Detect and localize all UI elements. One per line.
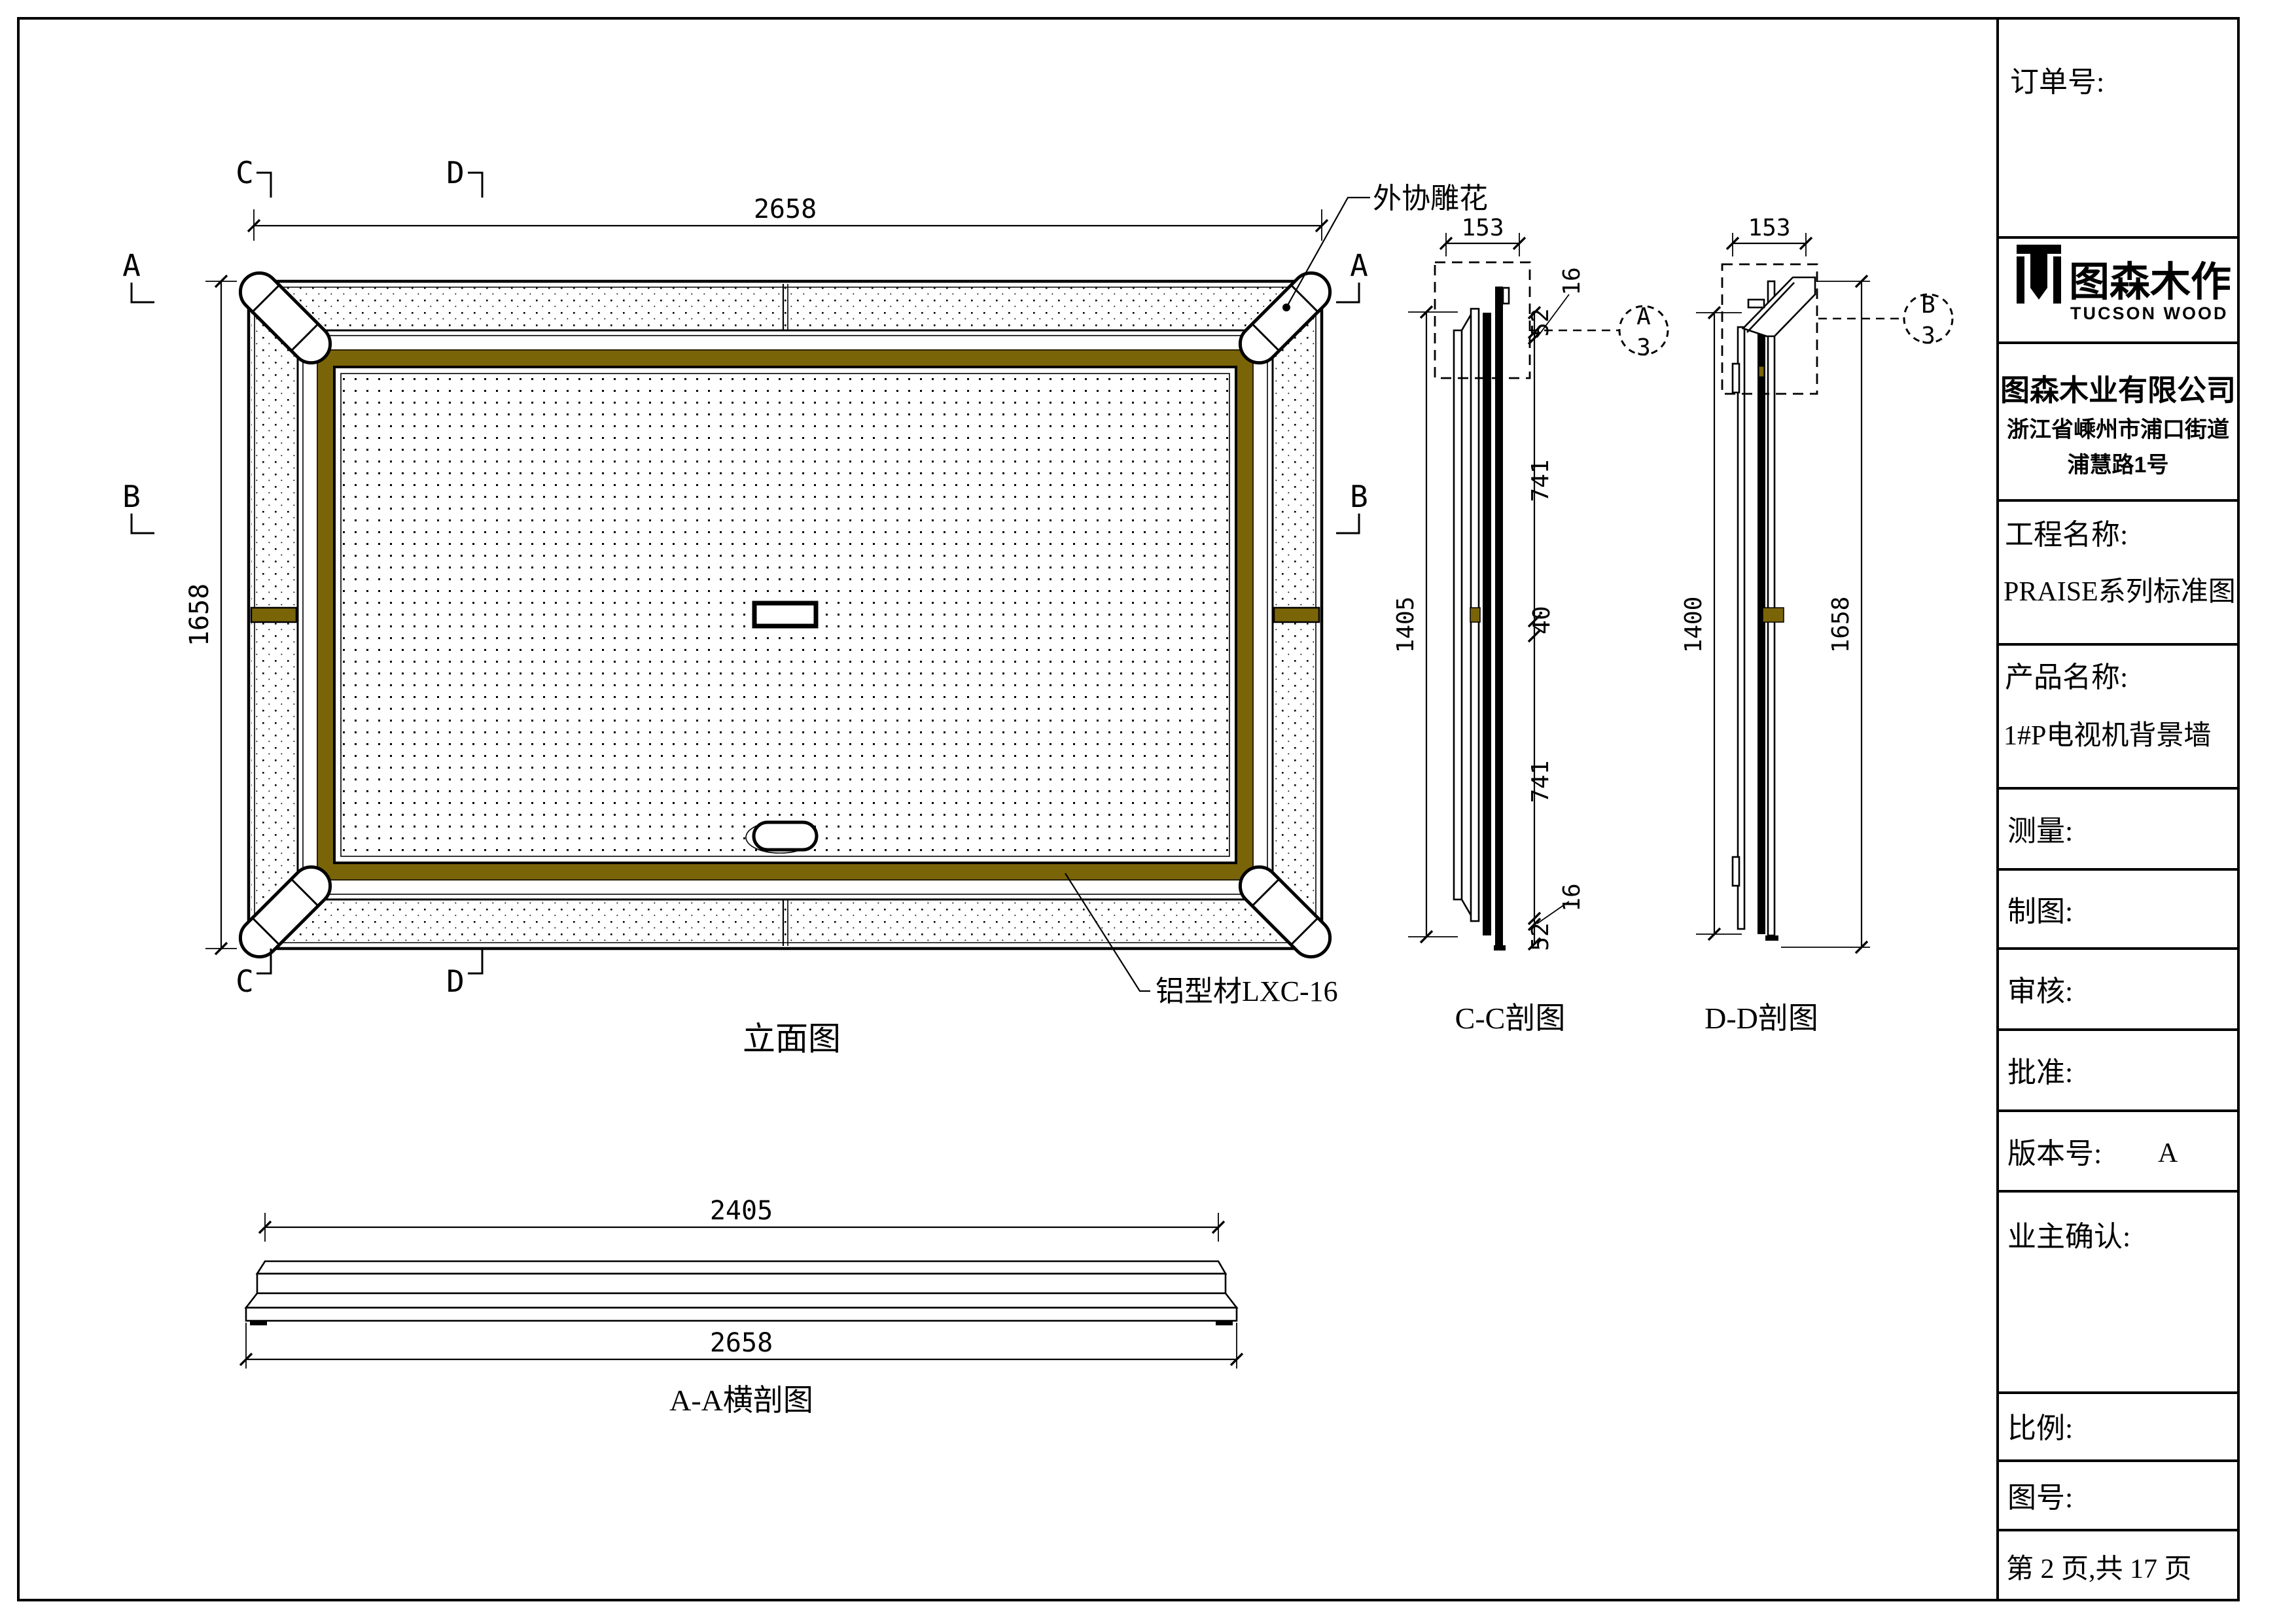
survey-label: 测量: [2007,815,2073,847]
dd-view-label: D-D剖图 [1704,1002,1818,1035]
approve-label: 批准: [2007,1056,2073,1089]
aa-section-view: 2405 2658 A-A横剖图 [240,1196,1243,1417]
order-no-label: 订单号: [2010,66,2104,98]
scale-label: 比例: [2007,1412,2073,1444]
review-label: 审核: [2007,975,2073,1007]
oval-cutout [754,822,817,850]
company-address-line2: 浦慧路1号 [2068,453,2169,478]
section-marker-d-top-flag [468,173,482,198]
product-name-value: 1#P电视机背景墙 [2004,721,2211,751]
cc-detail-box [1435,262,1530,378]
section-marker-a-right-flag [1336,283,1359,302]
dd-width-dim: 153 [1748,215,1790,241]
dd-mid-gold [1763,608,1784,622]
elev-height-dim: 1658 [185,584,215,646]
draft-label: 制图: [2007,896,2073,928]
cc-dim-40-mid: 40 [1528,606,1555,634]
left-mid-seam [251,608,296,622]
cc-dim-741-upper: 741 [1527,459,1554,502]
dd-detail-letter: B [1921,292,1935,319]
profile-annotation: 铝型材LXC-16 [1156,975,1338,1007]
dd-height-right-dim: 1658 [1828,597,1854,654]
drawing-no-label: 图号: [2007,1482,2073,1514]
company-address-line1: 浙江省嵊州市浦口街道 [2007,417,2229,442]
carving-annotation: 外协雕花 [1373,183,1488,215]
elev-width-dim: 2658 [754,194,817,224]
cc-height-dim: 1405 [1392,597,1419,654]
cc-detail-letter: A [1636,304,1651,330]
aa-inner-width-dim: 2405 [710,1196,773,1226]
cc-section-view: A 3 153 1405 52 16 741 40 741 16 52 C-C剖… [1392,215,1668,1035]
project-name-value: PRAISE系列标准图 [2004,577,2236,607]
section-marker-d-bottom: D [446,964,465,999]
section-marker-c-bottom: C [236,964,254,999]
carving-leader-dot [1282,304,1290,311]
cc-dim-16-top: 16 [1559,267,1585,295]
project-name-label: 工程名称: [2005,519,2128,551]
title-block: 订单号: 图森木作 TUCSON WOOD 图森木业有限公司 浙江省嵊州市浦口街… [1998,18,2238,1600]
company-name: 图森木业有限公司 [2000,374,2236,407]
right-mid-seam [1274,608,1319,622]
version-value: A [2158,1138,2178,1168]
elevation-view-label: 立面图 [743,1021,841,1057]
logo-en-text: TUCSON WOOD [2070,304,2229,323]
dd-height-left-dim: 1400 [1680,597,1707,654]
tucson-wood-logo: 图森木作 TUCSON WOOD [2017,245,2231,323]
section-marker-b-right-flag [1336,514,1359,533]
section-marker-b-right: B [1350,479,1368,514]
cc-dim-741-lower: 741 [1527,760,1554,803]
section-marker-a-left-flag [132,283,154,302]
logo-cn-text: 图森木作 [2069,260,2231,305]
dd-section-view: B 3 153 1400 1658 D-D剖图 [1680,215,1952,1035]
section-marker-d-top: D [446,155,465,190]
page-indicator: 第 2 页,共 17 页 [2006,1554,2192,1584]
dd-detail-sheet: 3 [1921,323,1935,349]
center-mount-plate [754,603,816,626]
version-label: 版本号: [2007,1138,2102,1170]
section-marker-d-bottom-flag [468,949,482,973]
section-marker-b-left: B [122,479,141,514]
section-marker-b-left-flag [132,514,154,533]
aa-outer-width-dim: 2658 [710,1328,773,1358]
owner-confirm-label: 业主确认: [2007,1221,2130,1253]
aa-view-label: A-A横剖图 [669,1384,813,1417]
cc-mid-gold [1470,608,1480,622]
section-marker-c-top-flag [256,173,271,198]
cc-detail-sheet: 3 [1636,334,1651,361]
cc-width-dim: 153 [1461,215,1504,241]
section-marker-c-top: C [236,155,254,190]
section-marker-a-right: A [1350,248,1368,283]
drawing-sheet: 2658 1658 C D C D A B A B 外协雕花 铝型材LXC-16… [0,0,2296,1623]
cc-dim-16-bottom: 16 [1559,883,1585,911]
elevation-view: 2658 1658 C D C D A B A B 外协雕花 铝型材LXC-16… [122,155,1488,1057]
cad-drawing-canvas: 2658 1658 C D C D A B A B 外协雕花 铝型材LXC-16… [0,0,2296,1623]
product-name-label: 产品名称: [2005,661,2128,693]
cc-dim-52-bottom: 52 [1527,922,1554,951]
section-marker-a-left: A [122,248,141,283]
cc-view-label: C-C剖图 [1455,1002,1566,1035]
